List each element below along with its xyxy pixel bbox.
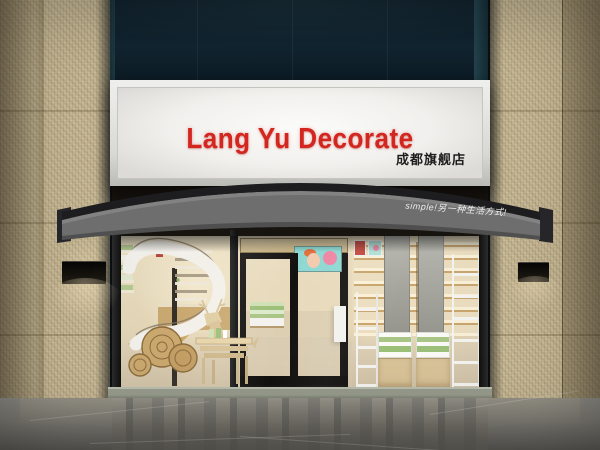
upper-wall-panel <box>103 0 486 84</box>
pilaster-right-side-face <box>562 0 600 400</box>
storefront-frame-left <box>112 230 121 390</box>
deer-back-products <box>209 328 227 338</box>
upper-wall-reveal-right <box>474 0 488 84</box>
wall-sconce-right <box>518 262 549 282</box>
storefront-frame-right <box>479 230 488 390</box>
pilaster-left-side-face <box>0 0 44 400</box>
storefront-scene: Lang Yu Decorate 成都旗舰店 simple!另一种生活方式! <box>0 0 600 450</box>
wall-sconce-left <box>62 261 106 284</box>
awning-end-cap-right <box>539 207 553 243</box>
awning <box>55 150 555 245</box>
